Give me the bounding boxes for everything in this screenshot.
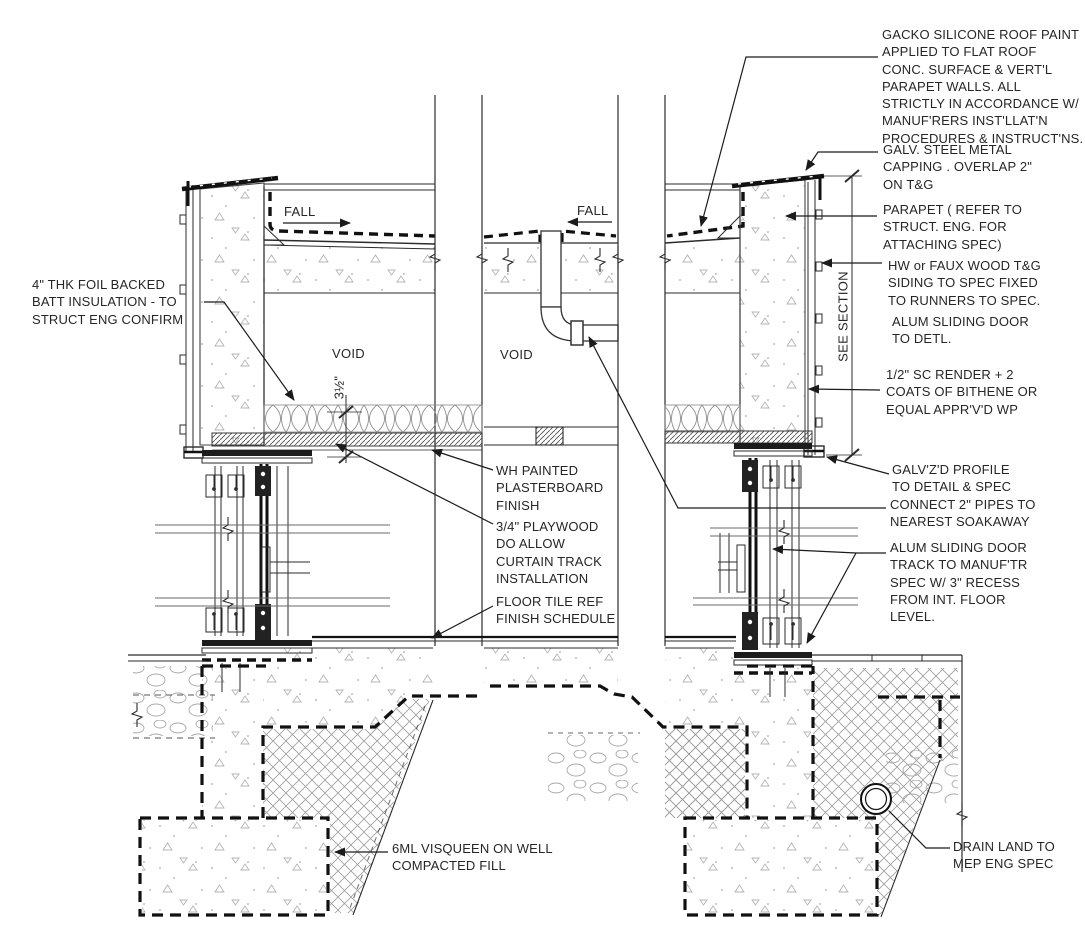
callout-insulation: 4" THK FOIL BACKED BATT INSULATION - TO …: [32, 276, 183, 328]
callout-sliding-door: ALUM SLIDING DOOR TO DETL.: [892, 313, 1029, 348]
roof-membrane-right: [667, 192, 743, 236]
plasterboard-right: [665, 431, 812, 443]
callout-galv-profile: GALV'Z'D PROFILE TO DETAIL & SPEC: [892, 461, 1011, 496]
ceiling-bay-center: [484, 427, 618, 445]
door-handle-right: [718, 545, 745, 592]
see-section-label: SEE SECTION: [836, 262, 851, 372]
callout-render: 1/2" SC RENDER + 2 COATS OF BITHENE OR E…: [886, 366, 1037, 418]
void-label-right: VOID: [500, 347, 533, 362]
section-detail-sheet: GACKO SILICONE ROOF PAINT APPLIED TO FLA…: [0, 0, 1085, 934]
fall-label-left: FALL: [284, 204, 316, 219]
door-head-left: [202, 450, 312, 456]
leader-plywood: [336, 444, 493, 524]
floor-assembly: [312, 637, 736, 648]
insulation-thickness-dim: 3½": [332, 367, 347, 409]
leader-render: [809, 389, 880, 390]
door-sill-right: [734, 652, 812, 658]
leader-door-track-a: [773, 549, 886, 553]
callout-visqueen: 6ML VISQUEEN ON WELL COMPACTED FILL: [392, 840, 553, 875]
door-sill-left: [202, 640, 312, 646]
fall-label-right: FALL: [577, 203, 609, 218]
fall-arrows: [283, 222, 612, 223]
callout-door-track: ALUM SLIDING DOOR TRACK TO MANUF'TR SPEC…: [890, 539, 1027, 625]
callout-floor-tile: FLOOR TILE REF FINISH SCHEDULE: [496, 593, 615, 628]
plasterboard-left: [212, 433, 482, 446]
void-label-left: VOID: [332, 346, 365, 361]
callout-siding: HW or FAUX WOOD T&G SIDING TO SPEC FIXED…: [888, 257, 1041, 309]
leader-plasterboard: [432, 450, 493, 470]
drain-pipe-section: [861, 784, 891, 814]
callout-capping: GALV. STEEL METAL CAPPING . OVERLAP 2" O…: [883, 141, 1032, 193]
door-handle-left: [262, 547, 310, 592]
callout-drain: DRAIN LAND TO MEP ENG SPEC: [953, 838, 1055, 873]
callout-roof-paint: GACKO SILICONE ROOF PAINT APPLIED TO FLA…: [882, 26, 1083, 147]
callout-parapet: PARAPET ( REFER TO STRUCT. ENG. FOR ATTA…: [883, 201, 1022, 253]
batt-insulation-right: [665, 405, 740, 432]
leader-floor-tile: [432, 606, 493, 638]
door-head-right: [734, 443, 812, 449]
callout-plasterboard: WH PAINTED PLASTERBOARD FINISH: [496, 462, 603, 514]
siding-clips-right: [816, 210, 822, 427]
pipe-coupling: [571, 321, 583, 345]
leader-capping: [806, 152, 878, 170]
callout-pipes: CONNECT 2" PIPES TO NEAREST SOAKAWAY: [890, 496, 1035, 531]
batt-insulation-left: [264, 405, 482, 432]
callout-plywood: 3/4" PLAYWOOD DO ALLOW CURTAIN TRACK INS…: [496, 518, 602, 587]
leader-galv-profile: [827, 457, 889, 474]
pipe-boxing: [536, 427, 563, 445]
